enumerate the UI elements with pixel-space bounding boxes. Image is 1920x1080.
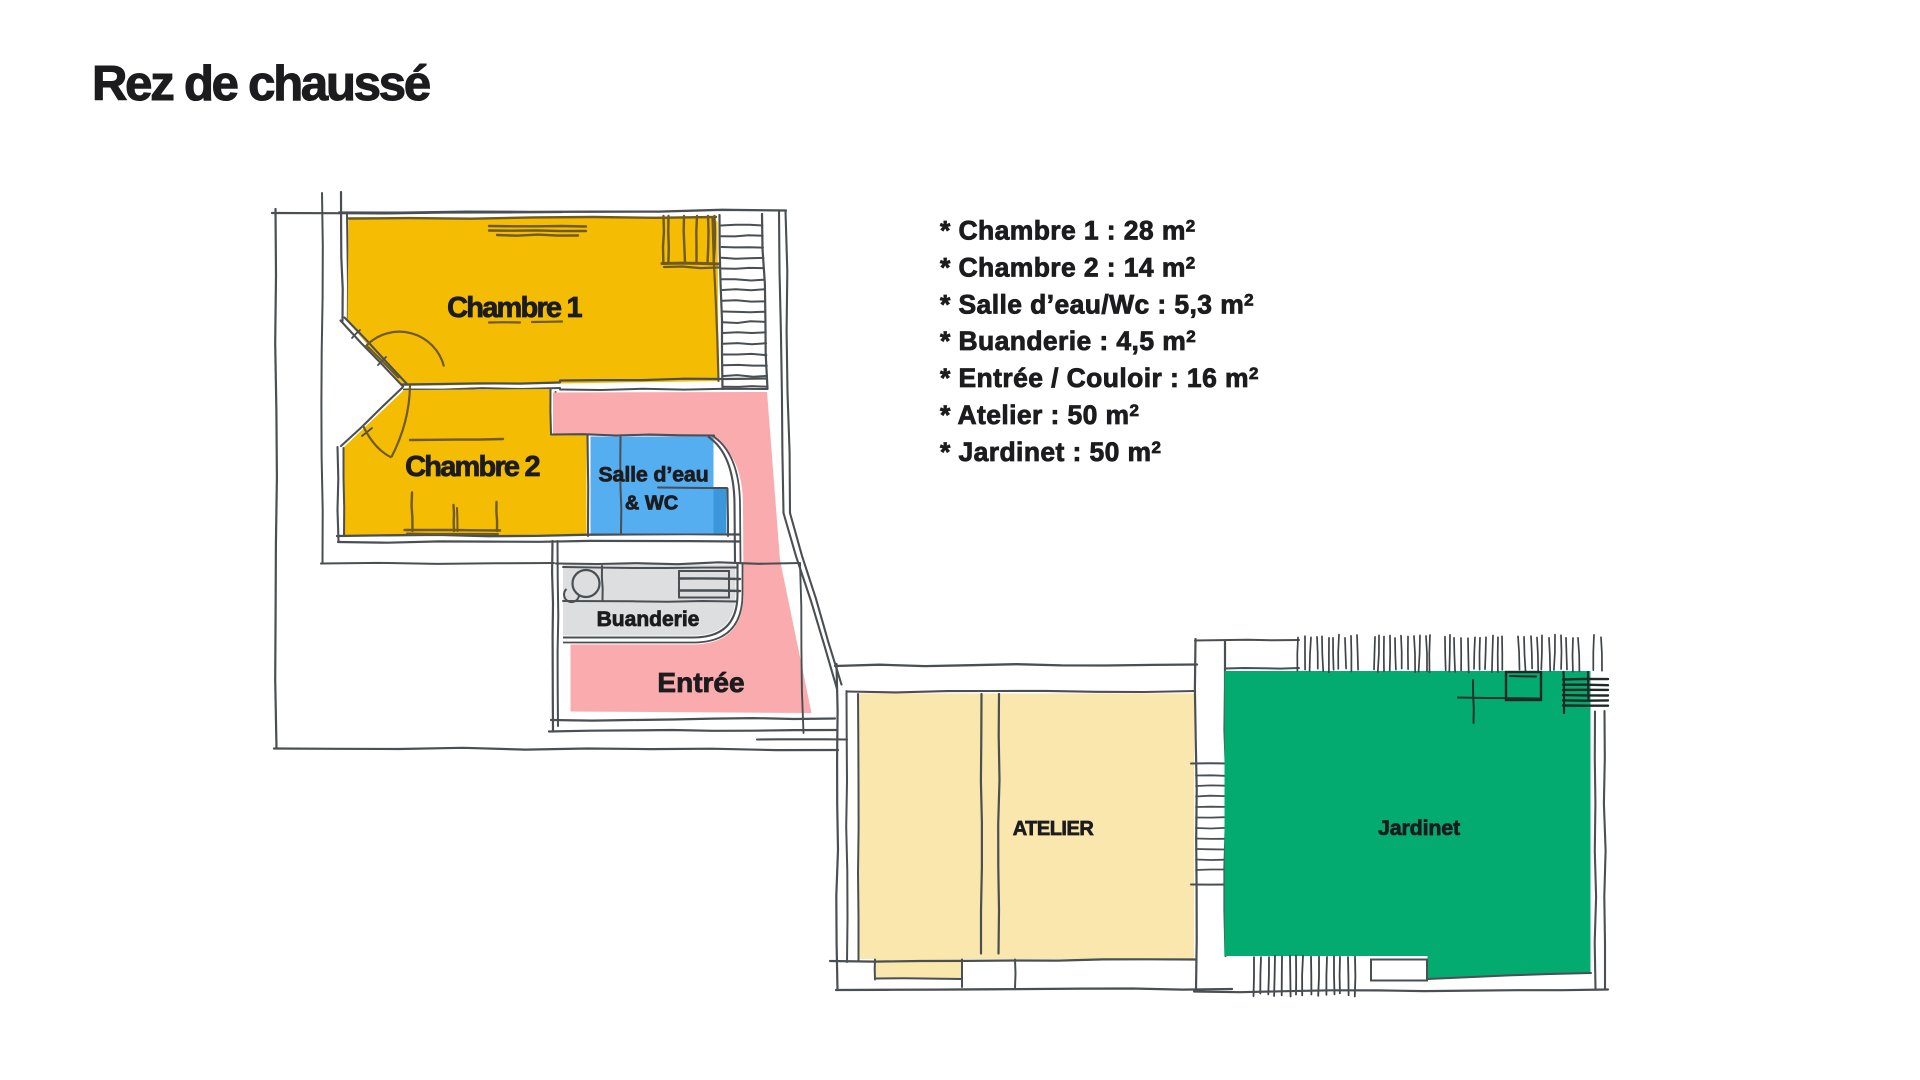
svg-text:Jardinet: Jardinet <box>1378 816 1460 840</box>
svg-text:Salle d’eau: Salle d’eau <box>598 463 708 487</box>
svg-text:* Atelier : 50 m2: * Atelier : 50 m2 <box>940 400 1139 430</box>
svg-text:Entrée: Entrée <box>657 667 744 698</box>
svg-text:* Salle d’eau/Wc : 5,3 m2: * Salle d’eau/Wc : 5,3 m2 <box>940 289 1254 319</box>
svg-text:* Chambre 1 : 28 m2: * Chambre 1 : 28 m2 <box>940 216 1196 246</box>
svg-text:ATELIER: ATELIER <box>1013 818 1095 840</box>
svg-text:Buanderie: Buanderie <box>597 608 700 631</box>
svg-text:* Buanderie : 4,5 m2: * Buanderie : 4,5 m2 <box>940 326 1196 356</box>
svg-text:Chambre 1: Chambre 1 <box>447 292 582 324</box>
svg-text:Chambre 2: Chambre 2 <box>405 451 539 483</box>
svg-text:* Chambre 2 : 14 m2: * Chambre 2 : 14 m2 <box>940 252 1196 282</box>
svg-text:* Jardinet : 50 m2: * Jardinet : 50 m2 <box>940 437 1161 467</box>
svg-text:& WC: & WC <box>625 493 678 515</box>
svg-text:* Entrée / Couloir : 16 m2: * Entrée / Couloir : 16 m2 <box>940 363 1259 393</box>
svg-text:Rez de chaussé: Rez de chaussé <box>92 57 430 111</box>
